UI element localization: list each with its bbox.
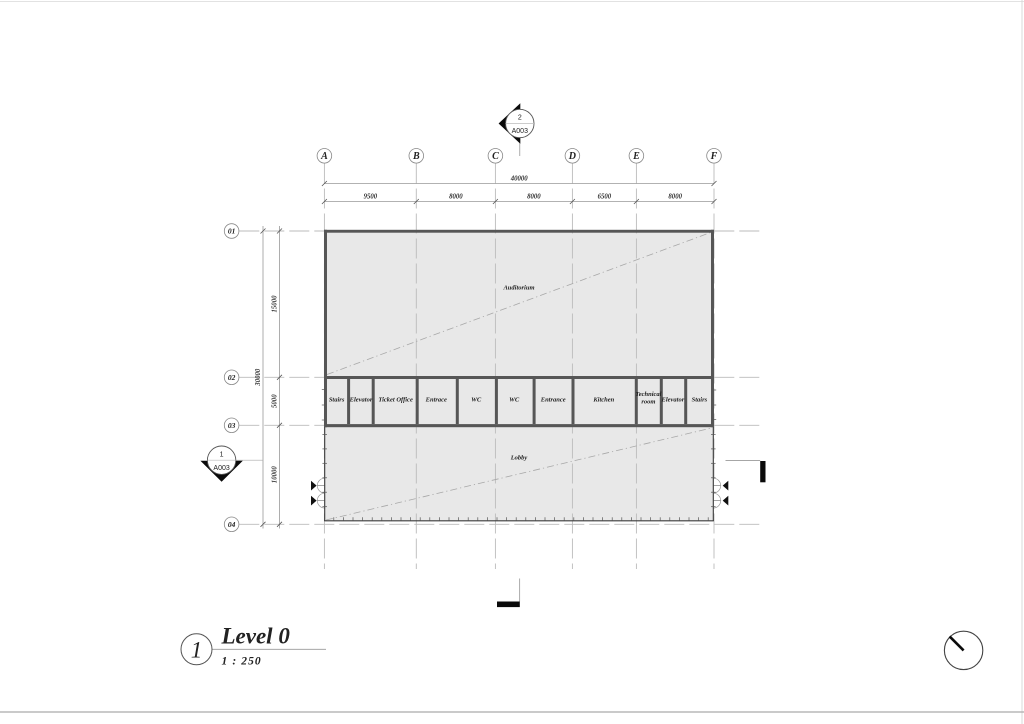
- svg-text:Lobby: Lobby: [510, 455, 528, 462]
- svg-text:WC: WC: [509, 397, 520, 404]
- svg-text:8000: 8000: [527, 194, 541, 201]
- svg-text:Entrace: Entrace: [425, 397, 447, 404]
- svg-text:A003: A003: [512, 128, 528, 135]
- svg-text:15000: 15000: [272, 295, 279, 313]
- svg-text:C: C: [492, 151, 499, 162]
- svg-text:6500: 6500: [598, 194, 612, 201]
- svg-text:40000: 40000: [510, 176, 529, 183]
- svg-text:Stairs: Stairs: [692, 397, 708, 404]
- svg-text:room: room: [641, 399, 655, 406]
- svg-text:03: 03: [228, 421, 236, 430]
- svg-text:Technical: Technical: [635, 391, 661, 398]
- svg-text:1: 1: [191, 637, 203, 662]
- svg-text:Kitchen: Kitchen: [592, 397, 614, 404]
- svg-text:A003: A003: [213, 465, 229, 472]
- svg-text:10000: 10000: [272, 466, 279, 484]
- svg-text:F: F: [710, 151, 718, 162]
- svg-text:Auditorium: Auditorium: [502, 285, 534, 292]
- svg-text:WC: WC: [471, 397, 482, 404]
- svg-text:Stairs: Stairs: [329, 397, 345, 404]
- svg-text:5000: 5000: [272, 394, 279, 408]
- svg-text:2: 2: [518, 115, 522, 122]
- svg-text:9500: 9500: [364, 194, 378, 201]
- svg-text:04: 04: [228, 520, 236, 529]
- svg-text:Entrance: Entrance: [540, 397, 566, 404]
- svg-text:01: 01: [228, 227, 236, 236]
- svg-text:1: 1: [220, 452, 224, 459]
- svg-text:A: A: [320, 151, 328, 162]
- svg-text:D: D: [568, 151, 576, 162]
- svg-text:Elevator: Elevator: [349, 397, 373, 404]
- svg-text:Ticket Office: Ticket Office: [378, 397, 413, 404]
- svg-text:1 : 250: 1 : 250: [222, 656, 262, 668]
- svg-text:Level 0: Level 0: [221, 624, 291, 649]
- svg-text:E: E: [632, 151, 640, 162]
- svg-text:02: 02: [228, 373, 236, 382]
- svg-text:8000: 8000: [668, 194, 682, 201]
- svg-text:8000: 8000: [449, 194, 463, 201]
- svg-text:B: B: [412, 151, 420, 162]
- svg-text:Elevator: Elevator: [661, 397, 685, 404]
- svg-text:30000: 30000: [255, 368, 262, 387]
